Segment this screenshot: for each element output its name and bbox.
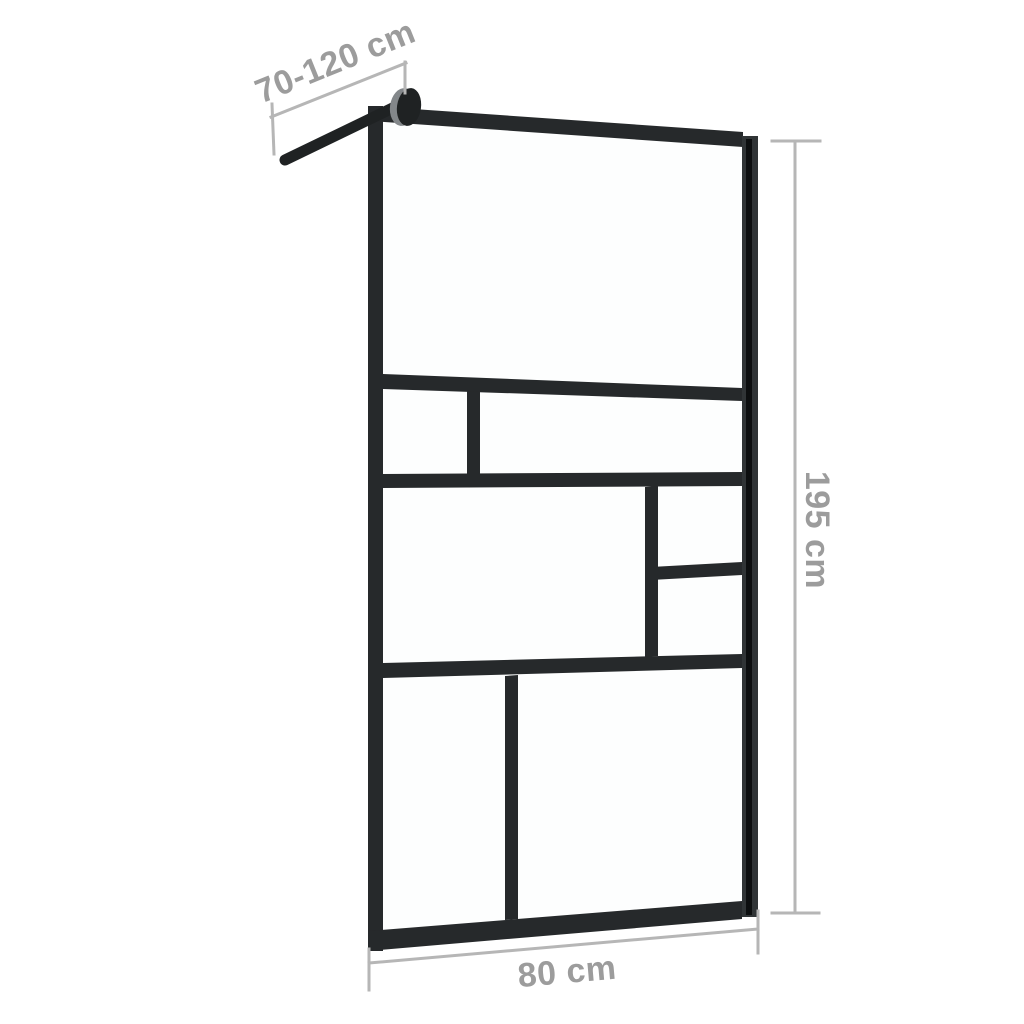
label-width: 80 cm (516, 949, 618, 995)
wall-profile-groove (746, 139, 752, 915)
left-stile-bar (368, 106, 383, 951)
shower-wall-dimension-diagram: 70-120 cm 195 cm 80 cm (0, 0, 1024, 1024)
dim-ext-support-left (272, 104, 274, 154)
mullion-lower (505, 675, 518, 920)
label-height: 195 cm (798, 471, 836, 589)
product-diagram-canvas: 70-120 cm 195 cm 80 cm (0, 0, 1024, 1024)
mullion-upper (467, 391, 480, 474)
crossbar-middle (383, 472, 742, 488)
mullion-middle (645, 486, 658, 657)
glass-panel (375, 112, 750, 946)
